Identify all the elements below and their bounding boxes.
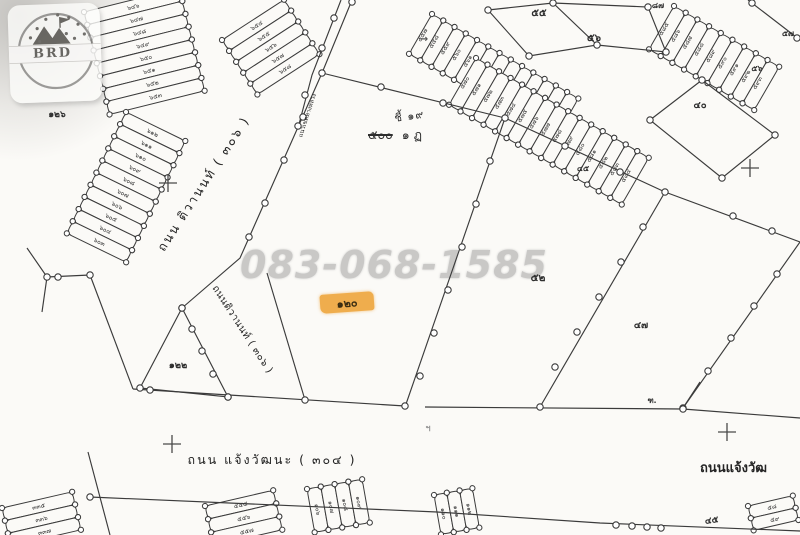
road-labels: ถนน ติวานนท์ ( ๓๐๖ )ถนนติวานนท์ ( ๓๐๖ )ถ… bbox=[154, 93, 767, 476]
road-label-chaengwattana_right: ถนนแจ้งวัฒ bbox=[700, 460, 767, 476]
strip-band-bottom-c: ๑๑๐๑๑๑๑๑๒ bbox=[431, 485, 482, 535]
strip-band-top-left-b: ๖๕๔๖๕๕๖๕๖๖๕๗๖๕๘ bbox=[218, 0, 323, 98]
plot-number-p87: ๘๗ bbox=[652, 1, 664, 10]
scanned-survey-map: 083-068-1585 ๖๔๖๖๔๗๖๔๘๖๔๙๖๕๐๖๕๑๖๕๒๖๕๓๖๕๔… bbox=[0, 0, 800, 535]
plot-number-p56b: ๕๖ bbox=[751, 64, 762, 73]
plot-number-p40: ๔๐ bbox=[694, 100, 707, 111]
strip-band-bottom-a: ๕๕๕๕๕๖๕๕๗ bbox=[202, 487, 286, 535]
survey-note-line2: ๕๐๐ ๑ ฏ bbox=[368, 125, 478, 145]
plot-number-p45a: ๔๕ bbox=[577, 164, 589, 173]
survey-map-svg: ๖๔๖๖๔๗๖๔๘๖๔๙๖๕๐๖๕๑๖๕๒๖๕๓๖๕๔๖๕๕๖๕๖๖๕๗๖๕๘๖… bbox=[0, 0, 800, 535]
survey-note: ชี้ ๑๙ ๕๐๐ ๑ ฏ bbox=[368, 103, 478, 145]
strip-band-bottom-b: ๑๐๖๑๐๗๑๐๘๑๐๙ bbox=[304, 476, 373, 535]
road-label-chaengwattana: ถนน แจ้งวัฒนะ ( ๓๐๔ ) bbox=[188, 452, 357, 467]
plot-number-p126: ๑๒๖ bbox=[48, 110, 66, 120]
struck-number: ๕๐๐ bbox=[368, 125, 393, 145]
plot-number-p45b: ๔๕ bbox=[704, 515, 719, 527]
plot-number-pjn: ฑ. bbox=[647, 396, 656, 405]
plot-number-p122: ๑๒๒ bbox=[169, 360, 188, 371]
brd-logo-text: BRD bbox=[33, 45, 73, 61]
plot-number-p56: ๕๖ bbox=[587, 33, 602, 44]
note-rest: ๑ ฏ bbox=[402, 125, 422, 145]
plot-number-p55: ๕๕ bbox=[531, 8, 547, 19]
plot-number-ptick: ฯ bbox=[425, 424, 430, 434]
strip-band-top-right: ๕๘๕๕๘๖๕๘๗๕๘๘๕๘๙๕๙๐๕๙๑๕๙๒๕๙๓ bbox=[645, 2, 782, 113]
plot-number-p52: ๕๒ bbox=[531, 272, 546, 284]
flag-icon bbox=[60, 18, 68, 28]
strip-band-bottom-right: ๕๘๕๙ bbox=[745, 493, 800, 534]
brd-logo-stamp: BRD bbox=[7, 2, 102, 103]
plot-number-p47: ๔๗ bbox=[634, 320, 648, 331]
highlighted-plot-number: ๑๒๐ bbox=[319, 291, 374, 314]
strip-band-bottom-left: ๓๓๕๓๓๖๓๓๗ bbox=[0, 489, 84, 535]
plot-number-parrow: → bbox=[420, 34, 428, 45]
road-label-tiwanon_small: ถนนติวานนท์ ( ๓๐๖ ) bbox=[209, 283, 275, 376]
plot-number-p57: ๕๗ bbox=[782, 29, 794, 38]
